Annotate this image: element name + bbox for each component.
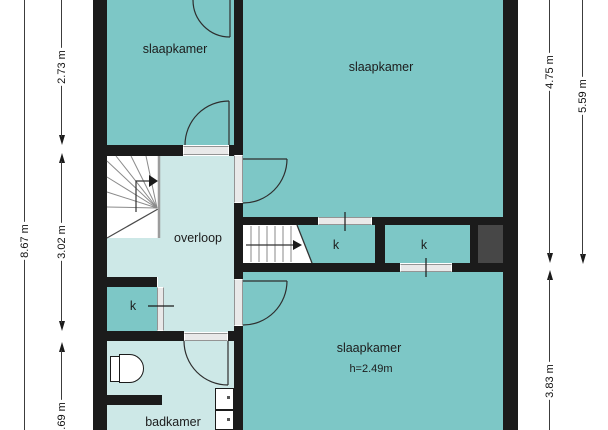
closet-left-door [157, 287, 164, 331]
room-label-bedroom-top-left: slaapkamer [143, 42, 208, 56]
room-label-landing: overloop [174, 231, 222, 245]
room-bedroom-top-right [243, 0, 503, 217]
door-opening-bedroom-top-left [183, 146, 229, 155]
stairs-winder [107, 156, 159, 238]
door-opening-bathroom [184, 333, 228, 341]
room-label-closet-left: k [130, 299, 136, 313]
room-closet-right [385, 225, 470, 263]
sink-dot [227, 396, 230, 399]
floorplan-canvas: 8.67 m 2.73 m 3.02 m 1.69 m 4.75 m 3.83 … [0, 0, 608, 430]
wall [372, 217, 503, 225]
dimension-label-left-top: 2.73 m [56, 48, 68, 86]
wall [243, 217, 318, 225]
wall [228, 331, 234, 341]
wall [503, 0, 518, 430]
shaft-block [478, 223, 503, 267]
wall [470, 223, 478, 267]
room-label-bedroom-top-right: slaapkamer [349, 60, 414, 74]
room-height-note: h=2.49m [349, 363, 392, 375]
door-opening-bedroom-bottom [234, 279, 243, 326]
dimension-line [24, 0, 25, 430]
wall [107, 145, 183, 156]
dimension-label-left-outer: 8.67 m [19, 222, 31, 260]
wall [234, 326, 243, 430]
dimension-label-left-bottom: 1.69 m [56, 400, 68, 430]
closet-mid-opening [318, 217, 372, 225]
wall [243, 263, 400, 272]
dimension-label-left-middle: 3.02 m [56, 223, 68, 261]
sink-dot [227, 418, 230, 421]
room-landing-understairs [107, 238, 161, 277]
room-label-closet-mid: k [333, 238, 339, 252]
room-label-bedroom-bottom: slaapkamer [337, 341, 402, 355]
wall [375, 225, 385, 263]
dimension-line [582, 0, 583, 256]
dimension-label-right-outer: 5.59 m [577, 77, 589, 115]
wall [107, 277, 157, 287]
dimension-line [549, 278, 550, 430]
wall [234, 0, 243, 155]
wall [234, 203, 243, 279]
dimension-label-right-inner-bottom: 3.83 m [544, 362, 556, 400]
closet-right-opening [400, 264, 452, 272]
room-label-bathroom: badkamer [145, 415, 201, 429]
room-bedroom-top-left [107, 0, 234, 145]
wall [93, 0, 107, 430]
dimension-line [549, 0, 550, 255]
room-label-closet-right: k [421, 238, 427, 252]
wall [107, 331, 184, 341]
sink-divider [215, 409, 234, 411]
door-opening-bedroom-top-right [234, 155, 243, 203]
wall [107, 395, 162, 405]
dimension-label-right-inner-top: 4.75 m [544, 53, 556, 91]
